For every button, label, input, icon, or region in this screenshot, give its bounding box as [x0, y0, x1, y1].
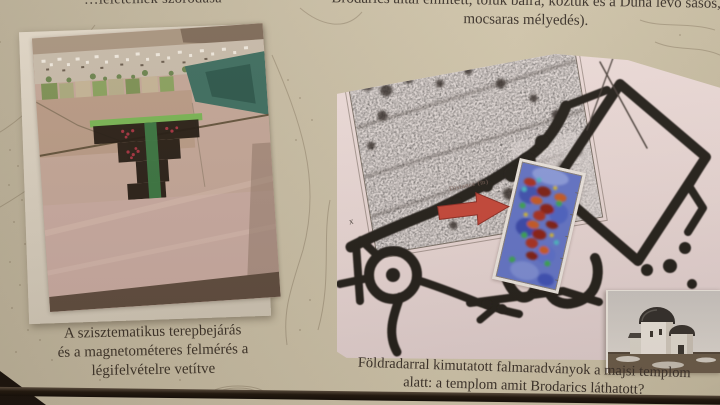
red-arrow-icon	[434, 187, 515, 232]
top-right-note-line1: Brodarics által említett, tőlük balra, k…	[331, 0, 652, 11]
round-church-graphic	[608, 291, 720, 373]
round-church-photo	[606, 290, 720, 373]
top-left-heading-fragment: …leleteinek szóródása	[84, 0, 222, 9]
left-figure-print-sheet	[19, 24, 271, 324]
left-figure-caption: A szisztematikus terepbejárás és a magne…	[13, 320, 292, 382]
photographed-presentation-slide: …leleteinek szóródása Brodarics által em…	[0, 0, 720, 405]
aerial-photo	[32, 23, 281, 312]
aerial-photo-graphic	[32, 23, 281, 312]
top-right-note: Brodarics által említett, tőlük balra, k…	[330, 0, 720, 33]
